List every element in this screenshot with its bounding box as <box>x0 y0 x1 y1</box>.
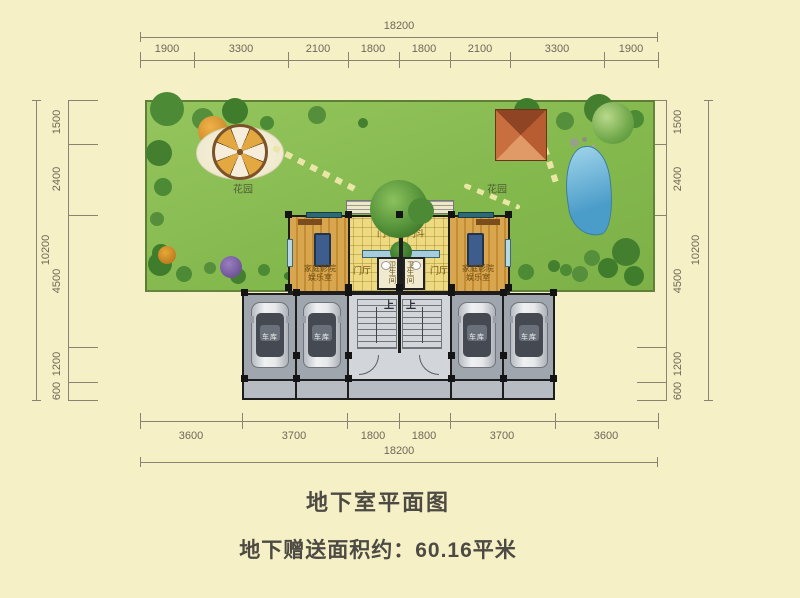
dim-top-segment: 1800 <box>412 43 436 55</box>
purple-bush <box>220 256 242 278</box>
car: 车库 <box>458 302 496 368</box>
tree-cluster-right <box>612 238 640 266</box>
dim-left-segment: 1200 <box>51 352 63 376</box>
floorplan-canvas: 18200 1900 3300 2100 1800 1800 2100 3300… <box>0 0 800 598</box>
car: 车库 <box>303 302 341 368</box>
door-arc <box>359 355 379 375</box>
window <box>287 239 293 267</box>
car-mirror <box>545 316 549 323</box>
dim-bottom-segment: 3600 <box>179 430 203 442</box>
north-window <box>306 212 342 218</box>
tree-cluster-left <box>146 140 172 166</box>
car-mirror <box>493 316 497 323</box>
garage-label: 车库 <box>252 332 288 342</box>
dim-line <box>666 100 667 400</box>
dim-bottom-segment: 3600 <box>594 430 618 442</box>
bathroom-label: 卫生间 <box>388 261 396 284</box>
dim-top-segment: 2100 <box>306 43 330 55</box>
garden-label-right: 花园 <box>487 181 507 196</box>
dim-right-segment: 600 <box>672 382 684 400</box>
dim-bottom-overall: 18200 <box>384 445 415 457</box>
dim-right-segment: 1200 <box>672 352 684 376</box>
car-mirror <box>286 316 290 323</box>
dim-right-segment: 1500 <box>672 110 684 134</box>
dim-top-overall: 18200 <box>384 20 415 32</box>
garage-wall <box>347 295 349 398</box>
garage-wall <box>450 295 452 398</box>
north-window <box>458 212 494 218</box>
dim-line <box>140 462 658 463</box>
dim-bottom-segment: 1800 <box>412 430 436 442</box>
cabinet <box>298 219 322 225</box>
tree-cluster-top <box>150 92 184 126</box>
theater-line1: 家庭影院 <box>304 264 336 273</box>
dim-top-segment: 2100 <box>468 43 492 55</box>
stair-arrow <box>422 307 423 343</box>
theater-label-right: 家庭影院 娱乐室 <box>449 264 507 282</box>
theater-line2: 娱乐室 <box>466 273 490 282</box>
billiard-table <box>314 233 331 267</box>
cabinet <box>476 219 500 225</box>
garage-wall <box>502 295 504 398</box>
garden-label-left: 花园 <box>233 181 253 196</box>
dim-left-segment: 2400 <box>51 167 63 191</box>
dim-line <box>140 37 658 38</box>
car-mirror <box>250 316 254 323</box>
garage-apron <box>244 381 553 398</box>
door-arc <box>419 355 439 375</box>
garage-label: 车库 <box>459 332 495 342</box>
dim-right-segment: 4500 <box>672 269 684 293</box>
dim-ticks <box>140 52 141 68</box>
foyer-label-right: 门厅 <box>430 264 448 277</box>
page-title: 地下室平面图 <box>306 485 450 517</box>
stair-divider-wall <box>398 295 401 353</box>
dim-tick <box>704 400 713 401</box>
dim-top-segment: 1800 <box>361 43 385 55</box>
dim-right-segment: 2400 <box>672 167 684 191</box>
garage-label: 车库 <box>511 332 547 342</box>
bathroom-label: 卫生间 <box>406 261 414 284</box>
dim-top-segment: 3300 <box>229 43 253 55</box>
pond-rocks <box>570 138 579 147</box>
foyer-label-left: 门厅 <box>353 264 371 277</box>
dim-top-segment: 3300 <box>545 43 569 55</box>
dim-right-overall: 10200 <box>690 235 702 266</box>
dim-tick <box>140 457 141 467</box>
dim-left-segment: 1500 <box>51 110 63 134</box>
dim-left-overall: 10200 <box>40 235 52 266</box>
dim-tick <box>657 457 658 467</box>
parasol-spokes <box>212 124 268 180</box>
center-tree-small <box>408 198 434 224</box>
dim-top-segment: 1900 <box>155 43 179 55</box>
stair-up-label: 上 <box>384 297 394 312</box>
dim-line <box>140 60 658 61</box>
garage-label: 车库 <box>304 332 340 342</box>
dim-tick <box>657 32 658 42</box>
bathroom-right: 卫生间 <box>403 257 425 290</box>
dim-ticks <box>140 413 141 429</box>
page-subtitle: 地下赠送面积约：60.16平米 <box>239 534 517 564</box>
garage-block: 上 上 车库 车库 车库 <box>242 293 555 400</box>
wall-columns <box>285 211 292 218</box>
theater-line2: 娱乐室 <box>308 273 332 282</box>
dim-top-segment: 1900 <box>619 43 643 55</box>
dim-tick <box>140 32 141 42</box>
stair-hall: 上 上 <box>349 295 450 381</box>
garage-wall <box>295 295 297 398</box>
round-tree <box>592 102 634 144</box>
dim-ticks <box>68 100 98 101</box>
car: 车库 <box>510 302 548 368</box>
stair-arrow <box>376 307 377 343</box>
dim-bottom-segment: 1800 <box>361 430 385 442</box>
dim-left-segment: 4500 <box>51 269 63 293</box>
dim-line <box>140 421 658 422</box>
garage-front-wall <box>244 379 553 381</box>
dim-line <box>68 100 69 400</box>
dim-tick <box>32 100 41 101</box>
dim-line <box>36 100 37 400</box>
dim-tick <box>32 400 41 401</box>
theater-label-left: 家庭影院 娱乐室 <box>291 264 349 282</box>
car-mirror <box>509 316 513 323</box>
dim-tick <box>704 100 713 101</box>
billiard-table <box>467 233 484 267</box>
stair-up-label: 上 <box>406 297 416 312</box>
window <box>505 239 511 267</box>
dim-line <box>708 100 709 400</box>
car-mirror <box>338 316 342 323</box>
skylight-pyramid <box>496 110 546 160</box>
car-mirror <box>457 316 461 323</box>
car-mirror <box>302 316 306 323</box>
orange-bush <box>158 246 176 264</box>
dim-bottom-segment: 3700 <box>490 430 514 442</box>
dim-left-segment: 600 <box>51 382 63 400</box>
car: 车库 <box>251 302 289 368</box>
dim-bottom-segment: 3700 <box>282 430 306 442</box>
theater-line1: 家庭影院 <box>462 264 494 273</box>
bathroom-left: 卫生间 <box>377 257 399 290</box>
